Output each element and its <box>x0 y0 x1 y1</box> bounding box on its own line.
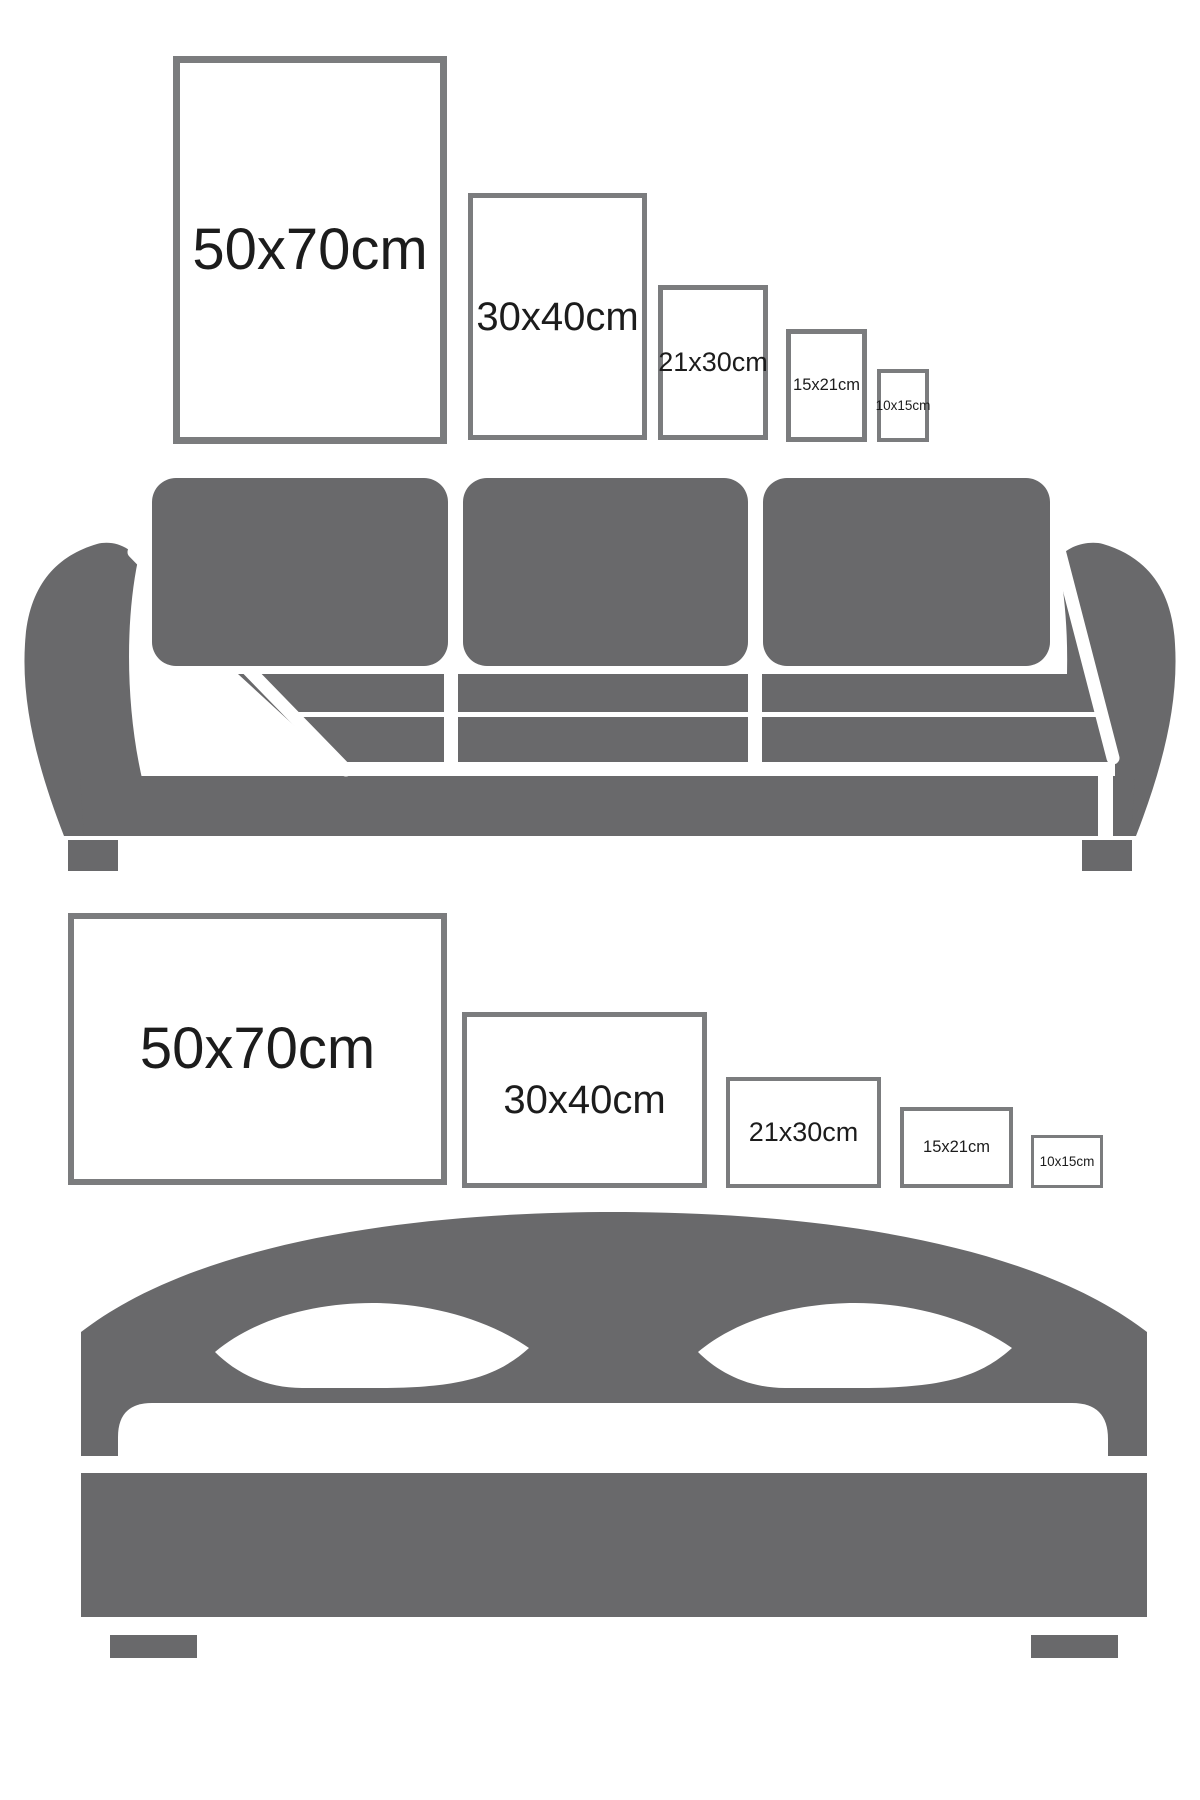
bed-icon <box>81 1212 1147 1658</box>
size-frame-10x15-portrait: 10x15cm <box>877 369 929 442</box>
size-label-15x21: 15x21cm <box>923 1139 990 1156</box>
size-frame-50x70-portrait: 50x70cm <box>173 56 447 444</box>
size-frame-30x40-landscape: 30x40cm <box>462 1012 707 1188</box>
size-frame-15x21-landscape: 15x21cm <box>900 1107 1013 1188</box>
size-label-21x30: 21x30cm <box>658 349 768 376</box>
size-label-10x15: 10x15cm <box>1040 1155 1095 1169</box>
size-frame-21x30-landscape: 21x30cm <box>726 1077 881 1188</box>
size-label-50x70: 50x70cm <box>140 1020 375 1078</box>
size-label-21x30: 21x30cm <box>749 1119 859 1146</box>
size-frame-21x30-portrait: 21x30cm <box>658 285 768 440</box>
size-frame-10x15-landscape: 10x15cm <box>1031 1135 1103 1188</box>
sofa-icon <box>24 478 1175 871</box>
size-label-30x40: 30x40cm <box>503 1080 665 1120</box>
size-frame-30x40-portrait: 30x40cm <box>468 193 647 440</box>
size-label-50x70: 50x70cm <box>192 221 427 279</box>
poster-size-guide: 50x70cm 30x40cm 21x30cm 15x21cm 10x15cm … <box>0 0 1200 1800</box>
size-label-15x21: 15x21cm <box>793 377 860 394</box>
size-label-10x15: 10x15cm <box>876 399 931 413</box>
size-label-30x40: 30x40cm <box>476 297 638 337</box>
size-frame-50x70-landscape: 50x70cm <box>68 913 447 1185</box>
size-frame-15x21-portrait: 15x21cm <box>786 329 867 442</box>
